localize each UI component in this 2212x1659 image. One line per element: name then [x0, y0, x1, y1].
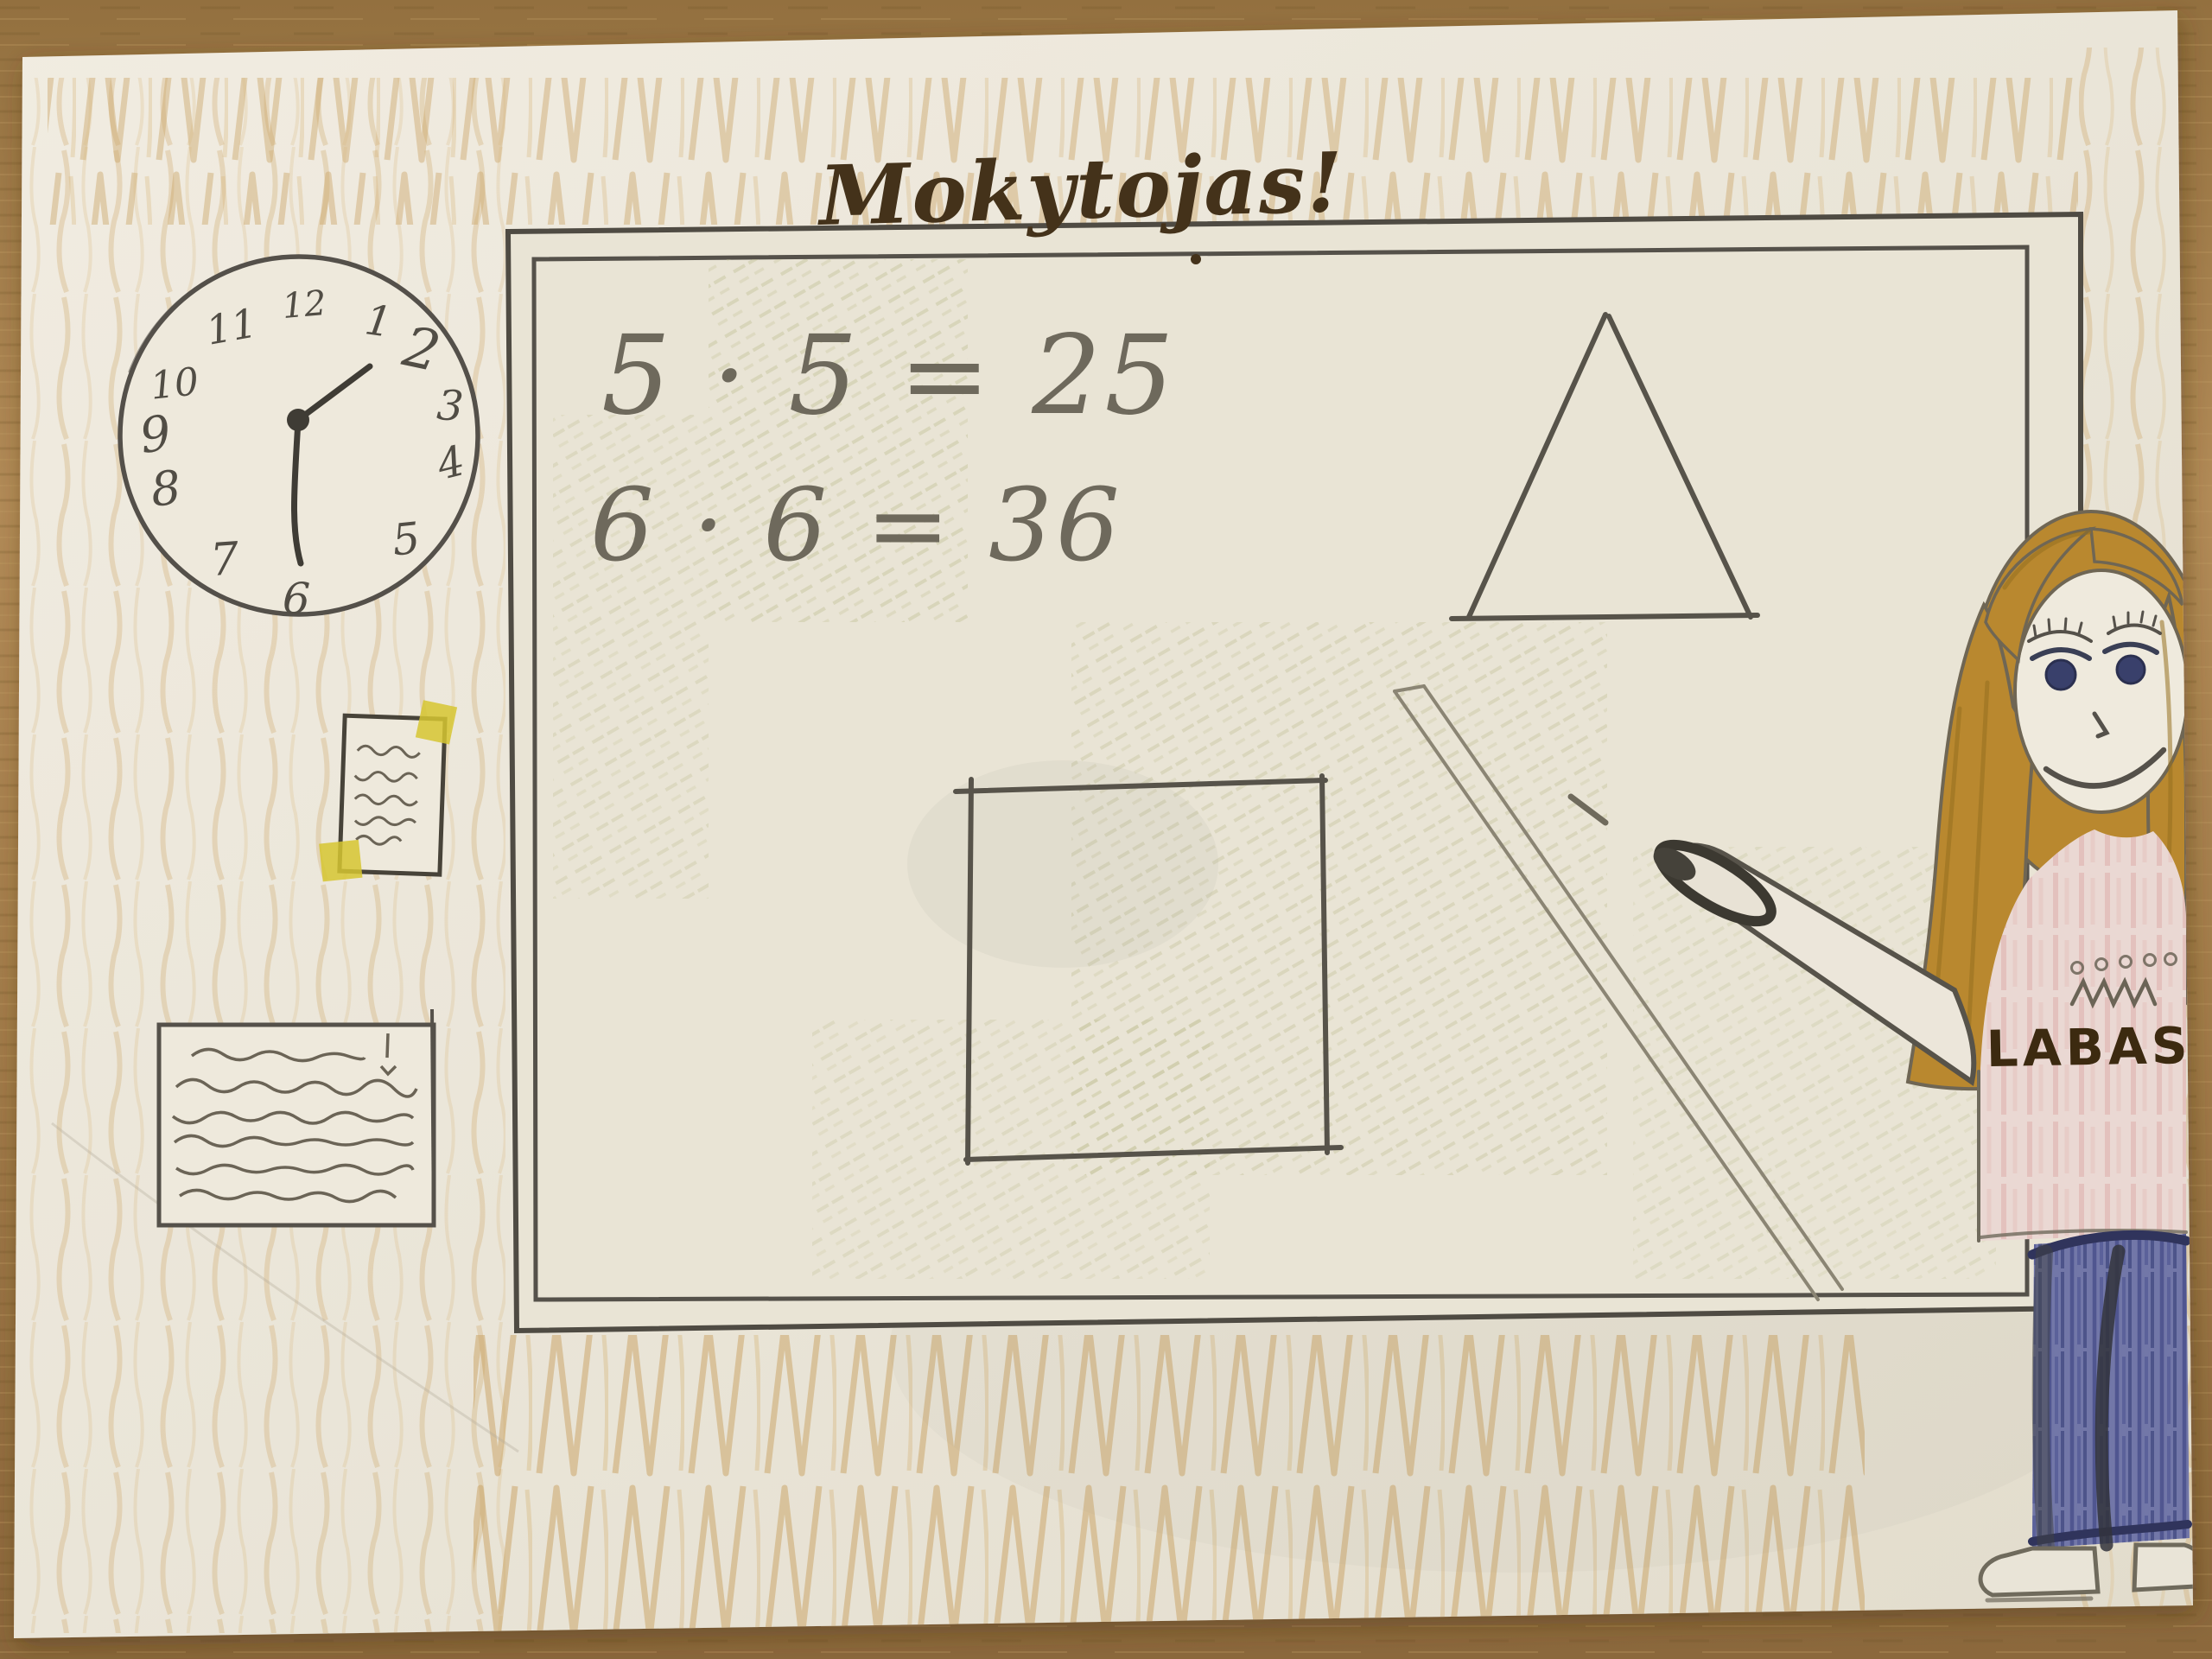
clock-numeral-3: 3 [435, 381, 465, 431]
clock-numeral-5: 5 [390, 512, 423, 565]
teacher-eye-left [2046, 660, 2075, 690]
drawing-photo: 12 1 2 3 4 5 6 7 8 9 10 11 [0, 0, 2212, 1659]
shirt-text: LABAS [1986, 1016, 2192, 1078]
note-tape-bottom [319, 840, 362, 882]
drawing-canvas: 12 1 2 3 4 5 6 7 8 9 10 11 [0, 0, 2212, 1659]
poster [159, 1009, 434, 1227]
jeans-left-shading [2041, 1253, 2046, 1547]
drawing-title: Mokytojas! [816, 135, 1346, 245]
clock-numeral-7: 7 [208, 533, 241, 587]
teacher-jeans [2032, 1234, 2190, 1548]
equation-1: 5 · 5 = 25 [601, 312, 1178, 439]
clock-numeral-11: 11 [202, 299, 260, 353]
clock-numeral-8: 8 [149, 460, 184, 517]
teacher-eye-right [2117, 656, 2145, 683]
teacher-shoe-left [1980, 1548, 2098, 1595]
clock-numeral-10: 10 [149, 359, 201, 409]
clock-hub [287, 409, 309, 431]
clock-numeral-6: 6 [282, 573, 311, 624]
whiteboard: 5 · 5 = 25 6 · 6 = 36 [508, 214, 2081, 1331]
poster-edge-line [432, 1009, 434, 1227]
equation-2: 6 · 6 = 36 [590, 467, 1123, 584]
teacher-face [2015, 570, 2188, 812]
clock-numeral-12: 12 [281, 283, 328, 327]
title-ink-dot [1191, 254, 1201, 264]
